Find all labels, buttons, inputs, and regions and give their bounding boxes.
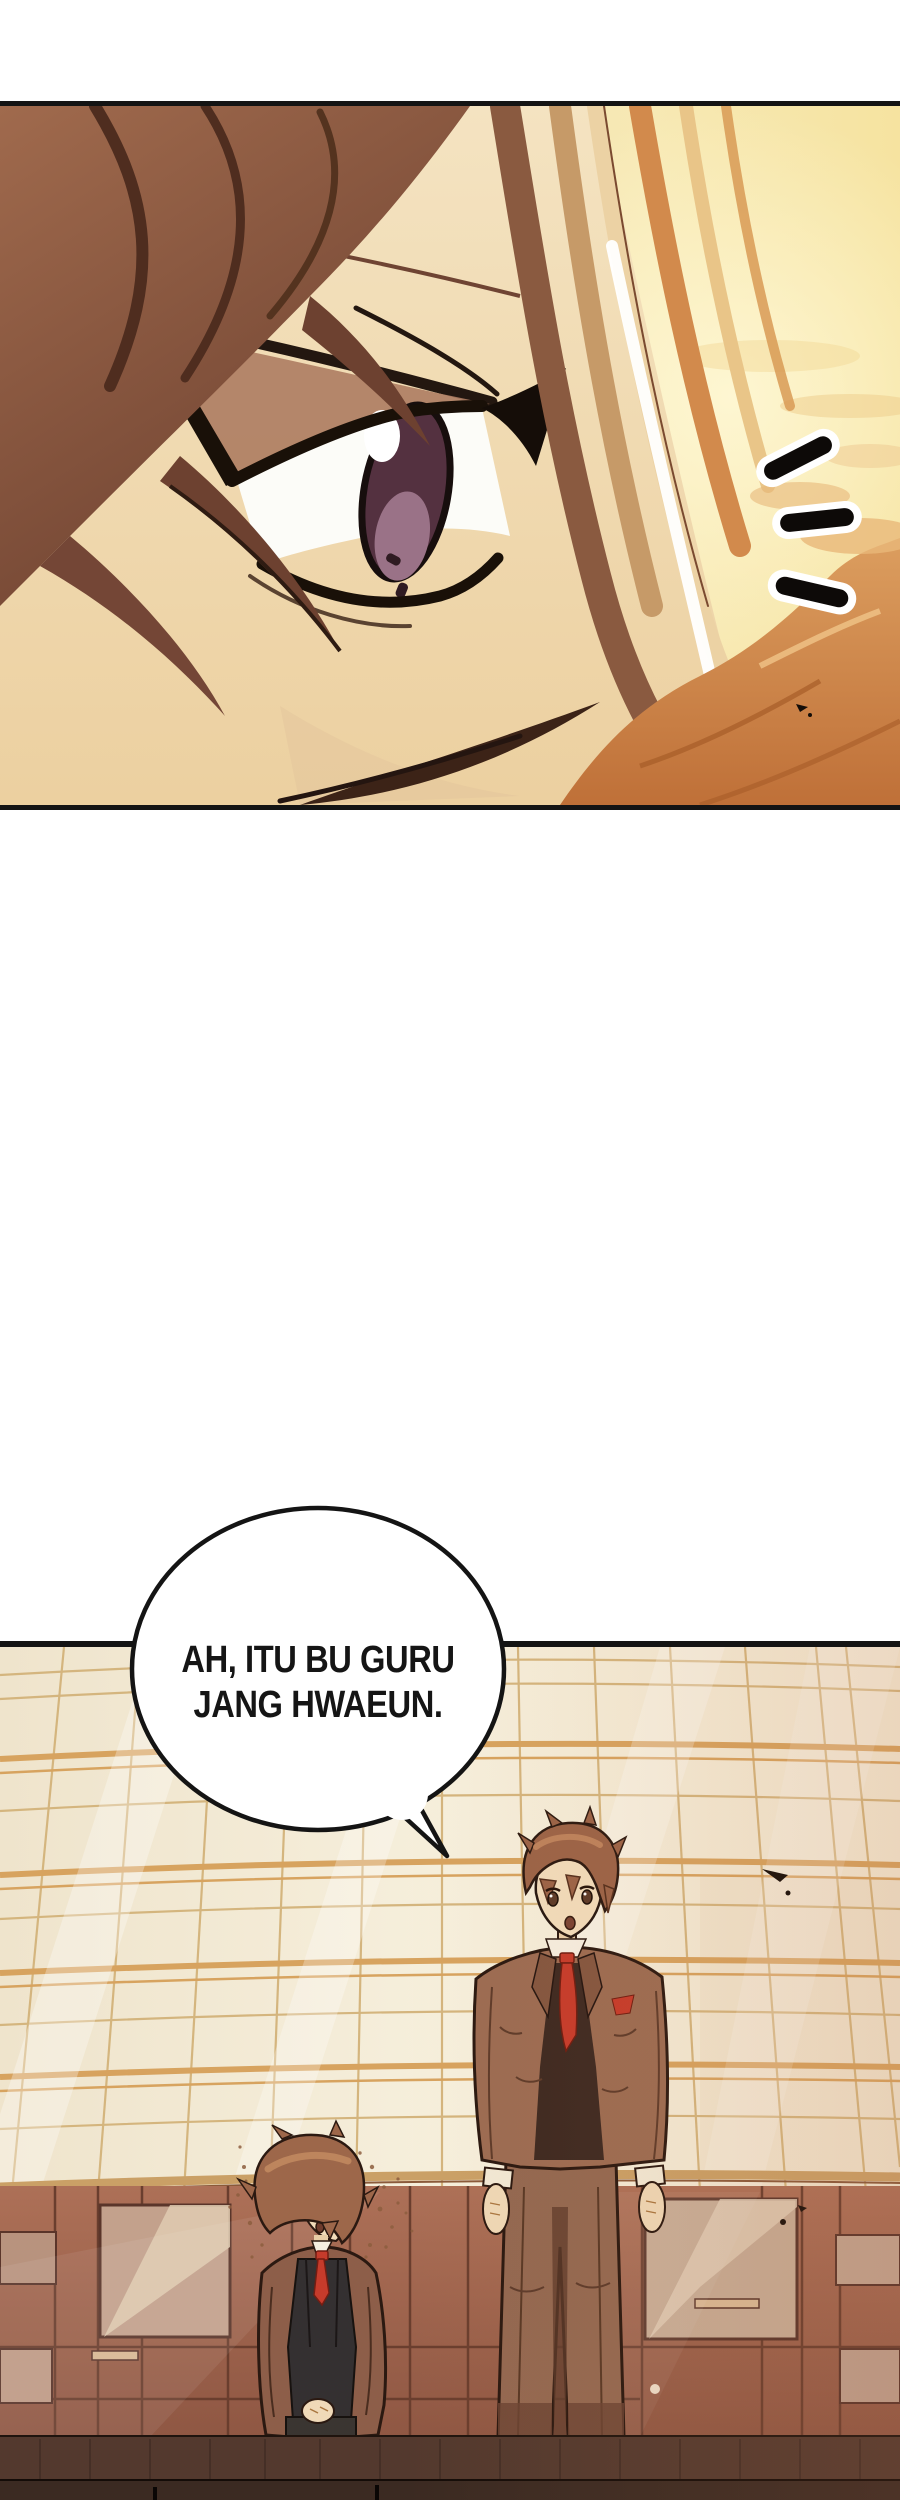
manhwa-page: AH, ITU BU GURU JANG HWAEUN.: [0, 0, 900, 2500]
panel-1-artwork: [0, 106, 900, 805]
girl-tie: [314, 2251, 329, 2305]
panel1-eye-closeup: [0, 106, 900, 805]
speech-bubble-text: AH, ITU BU GURU JANG HWAEUN.: [155, 1638, 482, 1734]
man-right-eye: [582, 1890, 592, 1904]
man-mouth: [565, 1917, 575, 1930]
man-left-hand: [483, 2184, 509, 2234]
panel1-bottom-border: [0, 805, 900, 810]
man-left-eye: [548, 1892, 558, 1906]
man-pocket-square: [612, 1995, 634, 2015]
speech-line-1: AH, ITU BU GURU: [155, 1638, 482, 1683]
floor-ledge: [0, 2435, 900, 2500]
girl-hands: [302, 2399, 334, 2423]
speech-line-2: JANG HWAEUN.: [155, 1683, 482, 1728]
man-right-hand: [639, 2182, 665, 2232]
